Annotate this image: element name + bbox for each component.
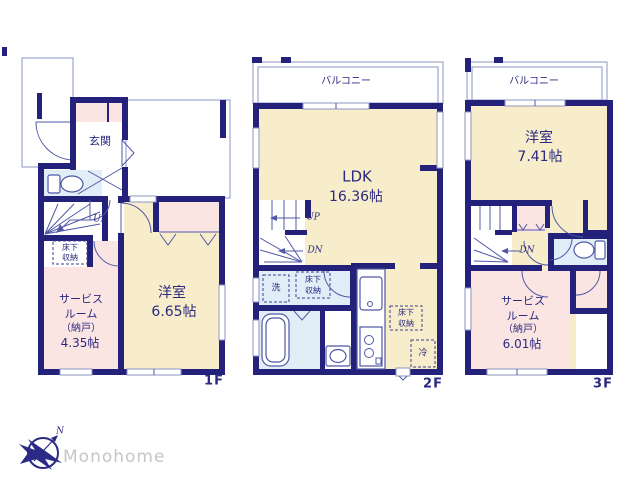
floor-2f-linework bbox=[252, 57, 443, 380]
service-room-label-1f-line1: サービス bbox=[59, 294, 103, 305]
floor-label-1f: 1F bbox=[204, 375, 224, 388]
service-room-label-3f-line1: サービス bbox=[501, 296, 545, 307]
western-room-size-3f: 7.41帖 bbox=[517, 150, 562, 164]
stairs-1f-icon bbox=[45, 204, 100, 234]
brand-logo-text: Monohome bbox=[63, 449, 165, 466]
underfloor-storage-label-1f-line1: 床下 bbox=[62, 244, 78, 252]
service-room-label-3f-line2: ルーム bbox=[507, 311, 540, 322]
service-room-size-1f: 4.35帖 bbox=[61, 337, 100, 349]
balcony-label-3f: バルコニー bbox=[509, 77, 559, 87]
underfloor-storage-label-1f-line2: 収納 bbox=[62, 254, 78, 262]
compass-icon bbox=[19, 435, 62, 470]
western-room-label-1f: 洋室 bbox=[158, 286, 186, 300]
toilet-icon-1f bbox=[48, 175, 83, 193]
service-room-label-3f-line3: （納戸） bbox=[503, 325, 543, 335]
washer-label-2f: 洗 bbox=[271, 285, 280, 294]
service-room-label-1f-line2: ルーム bbox=[65, 309, 98, 320]
balcony-label-2f: バルコニー bbox=[321, 77, 371, 87]
floorplan-canvas: 玄関 UP 床下 収納 サービス ルーム （納戸） 4.35帖 洋室 6.65帖… bbox=[0, 0, 640, 480]
floor-label-2f: 2F bbox=[423, 378, 443, 391]
fridge-label-2f: 冷 bbox=[418, 350, 427, 359]
front-door-icon bbox=[122, 140, 134, 166]
service-room-label-1f-line3: （納戸） bbox=[61, 324, 101, 334]
underfloor-storage-label-2f-a-line1: 床下 bbox=[305, 276, 321, 284]
underfloor-storage-label-2f-b-line1: 床下 bbox=[398, 309, 414, 317]
floorplan-drawing bbox=[0, 0, 640, 480]
underfloor-storage-label-2f-a-line2: 収納 bbox=[305, 287, 321, 295]
washbasin-icon bbox=[326, 346, 350, 366]
stairs-dn-label-2f: DN bbox=[307, 247, 322, 256]
floor-1f-linework bbox=[2, 47, 230, 375]
stairs-up-label-2f: UP bbox=[306, 214, 320, 223]
ldk-size: 16.36帖 bbox=[329, 190, 383, 204]
toilet-icon-3f bbox=[574, 241, 605, 259]
service-room-size-3f: 6.01帖 bbox=[503, 338, 542, 350]
kitchen-counter-icon bbox=[357, 269, 385, 369]
room-label-entrance-1f: 玄関 bbox=[89, 136, 111, 147]
western-room-label-3f: 洋室 bbox=[525, 131, 553, 145]
western-room-size-1f: 6.65帖 bbox=[151, 305, 196, 319]
stairs-dn-label-3f: DN bbox=[519, 247, 534, 256]
compass-north-label: N bbox=[56, 428, 64, 437]
floor-label-3f: 3F bbox=[593, 378, 613, 391]
ldk-label: LDK bbox=[342, 170, 372, 185]
stairs-up-label-1f: UP bbox=[93, 216, 107, 225]
underfloor-storage-label-2f-b-line2: 収納 bbox=[398, 320, 414, 328]
